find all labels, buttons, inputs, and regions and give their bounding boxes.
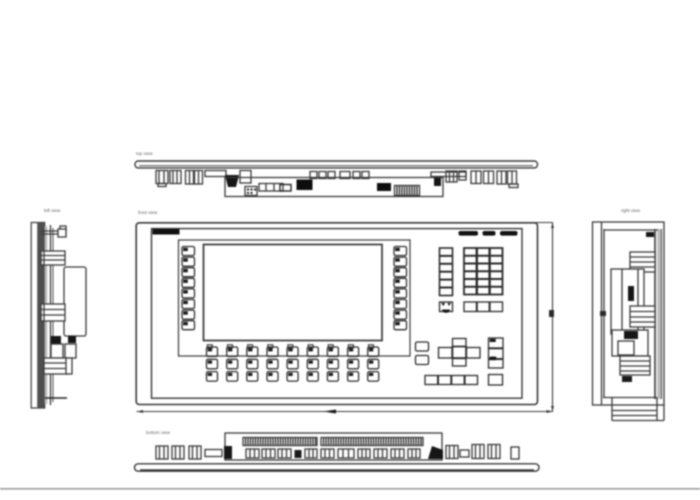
svg-text:left view: left view	[44, 208, 61, 213]
svg-text:right view: right view	[621, 208, 641, 213]
svg-text:front view: front view	[138, 210, 158, 215]
svg-text:top view: top view	[136, 151, 153, 156]
svg-text:bottom view: bottom view	[146, 430, 171, 435]
